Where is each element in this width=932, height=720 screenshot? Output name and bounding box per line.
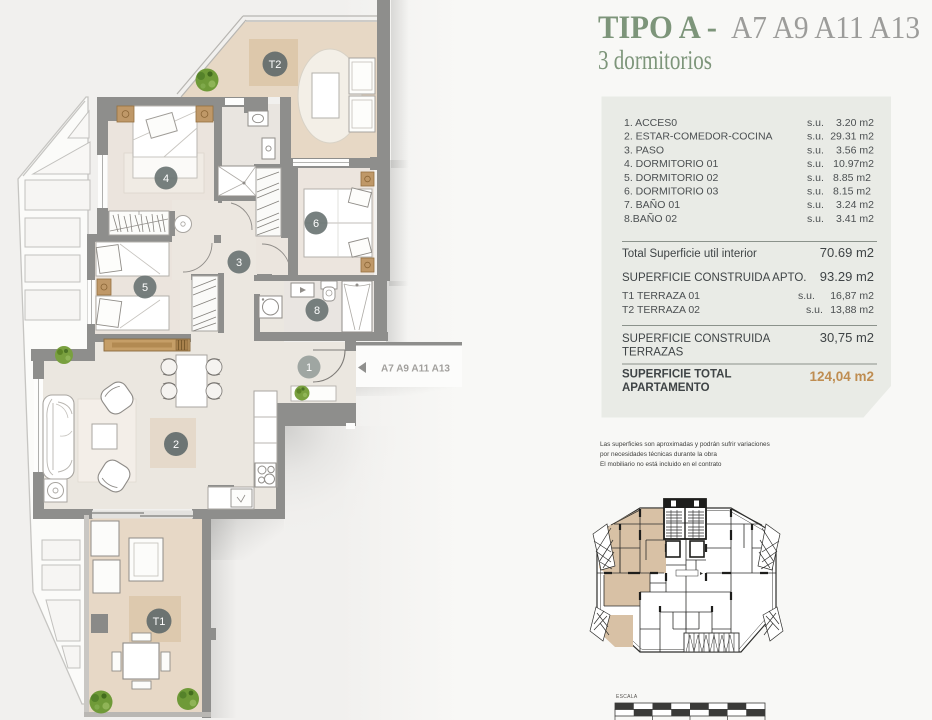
svg-text:s.u.: s.u. — [807, 144, 824, 156]
svg-text:3.20 m2: 3.20 m2 — [836, 117, 874, 129]
svg-text:3.24 m2: 3.24 m2 — [836, 199, 874, 211]
svg-text:8.BAÑO 02: 8.BAÑO 02 — [624, 212, 677, 225]
svg-text:por necesidades técnicas duran: por necesidades técnicas durante la obra — [600, 451, 717, 458]
svg-text:2. ESTAR-COMEDOR-COCINA: 2. ESTAR-COMEDOR-COCINA — [624, 131, 773, 143]
svg-text:SUPERFICIE TOTAL: SUPERFICIE TOTAL — [622, 369, 731, 381]
svg-text:29.31 m2: 29.31 m2 — [830, 131, 874, 143]
svg-text:s.u.: s.u. — [807, 186, 824, 198]
svg-text:5: 5 — [142, 282, 148, 294]
svg-text:3: 3 — [236, 257, 242, 269]
svg-text:1. ACCES0: 1. ACCES0 — [624, 117, 677, 129]
svg-text:5. DORMITORIO 02: 5. DORMITORIO 02 — [624, 172, 718, 184]
svg-text:T2 TERRAZA 02: T2 TERRAZA 02 — [622, 304, 700, 316]
svg-text:4: 4 — [163, 173, 169, 185]
svg-text:13,88 m2: 13,88 m2 — [830, 304, 874, 316]
svg-text:s.u.: s.u. — [798, 290, 815, 302]
svg-text:A7 A9 A11 A13: A7 A9 A11 A13 — [381, 364, 450, 375]
svg-text:SUPERFICIE CONSTRUIDA: SUPERFICIE CONSTRUIDA — [622, 333, 771, 345]
svg-text:s.u.: s.u. — [807, 199, 824, 211]
svg-text:TERRAZAS: TERRAZAS — [622, 347, 684, 359]
svg-text:APARTAMENTO: APARTAMENTO — [622, 382, 710, 394]
svg-text:2: 2 — [173, 439, 179, 451]
svg-text:Las superficies son aproximada: Las superficies son aproximadas y podrán… — [600, 441, 770, 448]
svg-text:4. DORMITORIO 01: 4. DORMITORIO 01 — [624, 158, 718, 170]
svg-text:El mobiliario no está incluido: El mobiliario no está incluido en el con… — [600, 461, 722, 468]
svg-text:7. BAÑO 01: 7. BAÑO 01 — [624, 198, 680, 211]
svg-text:s.u.: s.u. — [807, 131, 824, 143]
svg-text:8.85 m2: 8.85 m2 — [833, 172, 871, 184]
svg-text:1: 1 — [306, 362, 312, 374]
svg-text:93.29 m2: 93.29 m2 — [820, 269, 874, 284]
svg-text:Total Superficie util interior: Total Superficie util interior — [622, 248, 757, 260]
svg-text:3.56 m2: 3.56 m2 — [836, 144, 874, 156]
svg-text:3 dormitorios: 3 dormitorios — [598, 45, 712, 75]
svg-text:s.u.: s.u. — [807, 213, 824, 225]
svg-text:8.15 m2: 8.15 m2 — [833, 186, 871, 198]
svg-text:s.u.: s.u. — [807, 158, 824, 170]
svg-text:s.u.: s.u. — [807, 172, 824, 184]
svg-text:6: 6 — [313, 218, 319, 230]
svg-text:T1: T1 — [153, 616, 166, 628]
svg-text:6. DORMITORIO 03: 6. DORMITORIO 03 — [624, 186, 718, 198]
svg-text:ESCALA: ESCALA — [616, 694, 638, 700]
svg-text:3. PASO: 3. PASO — [624, 144, 664, 156]
svg-text:70.69 m2: 70.69 m2 — [820, 245, 874, 260]
svg-text:124,04 m2: 124,04 m2 — [809, 369, 874, 384]
svg-text:10.97m2: 10.97m2 — [833, 158, 874, 170]
svg-text:A7 A9 A11 A13: A7 A9 A11 A13 — [731, 9, 920, 45]
svg-text:3.41 m2: 3.41 m2 — [836, 213, 874, 225]
svg-text:30,75 m2: 30,75 m2 — [820, 330, 874, 345]
svg-text:T1 TERRAZA 01: T1 TERRAZA 01 — [622, 290, 700, 302]
svg-text:8: 8 — [314, 305, 320, 317]
svg-text:16,87 m2: 16,87 m2 — [830, 290, 874, 302]
svg-text:SUPERFICIE CONSTRUIDA APTO.: SUPERFICIE CONSTRUIDA APTO. — [622, 272, 806, 284]
svg-text:s.u.: s.u. — [807, 117, 824, 129]
svg-text:T2: T2 — [269, 59, 282, 71]
svg-text:TIPO A -: TIPO A - — [598, 10, 717, 46]
svg-text:s.u.: s.u. — [806, 304, 823, 316]
